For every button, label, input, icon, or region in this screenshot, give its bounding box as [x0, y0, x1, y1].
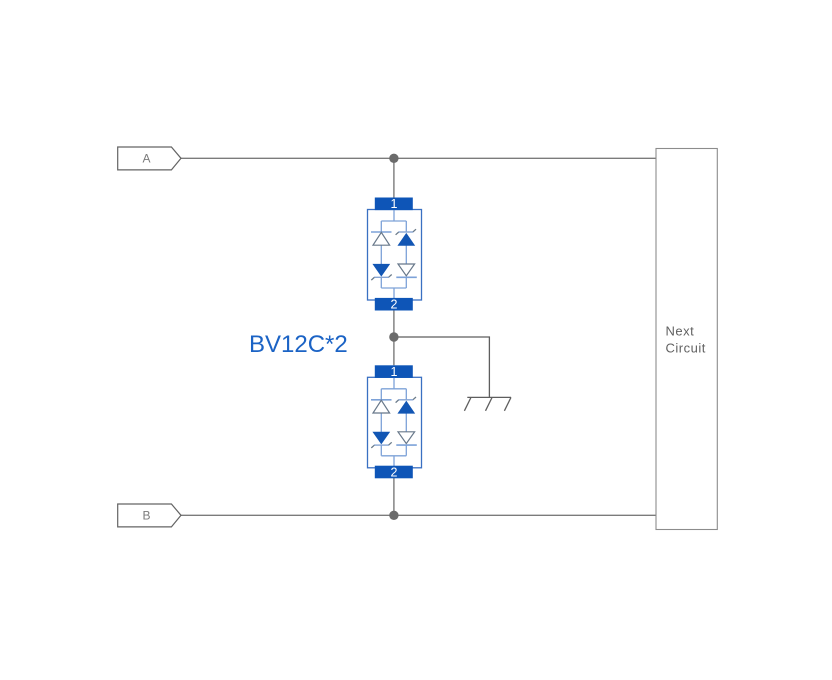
svg-text:BV12C*2: BV12C*2: [249, 331, 348, 358]
svg-text:Circuit: Circuit: [666, 341, 706, 356]
svg-text:B: B: [142, 509, 150, 523]
svg-text:A: A: [142, 152, 150, 166]
svg-text:Next: Next: [666, 324, 695, 339]
